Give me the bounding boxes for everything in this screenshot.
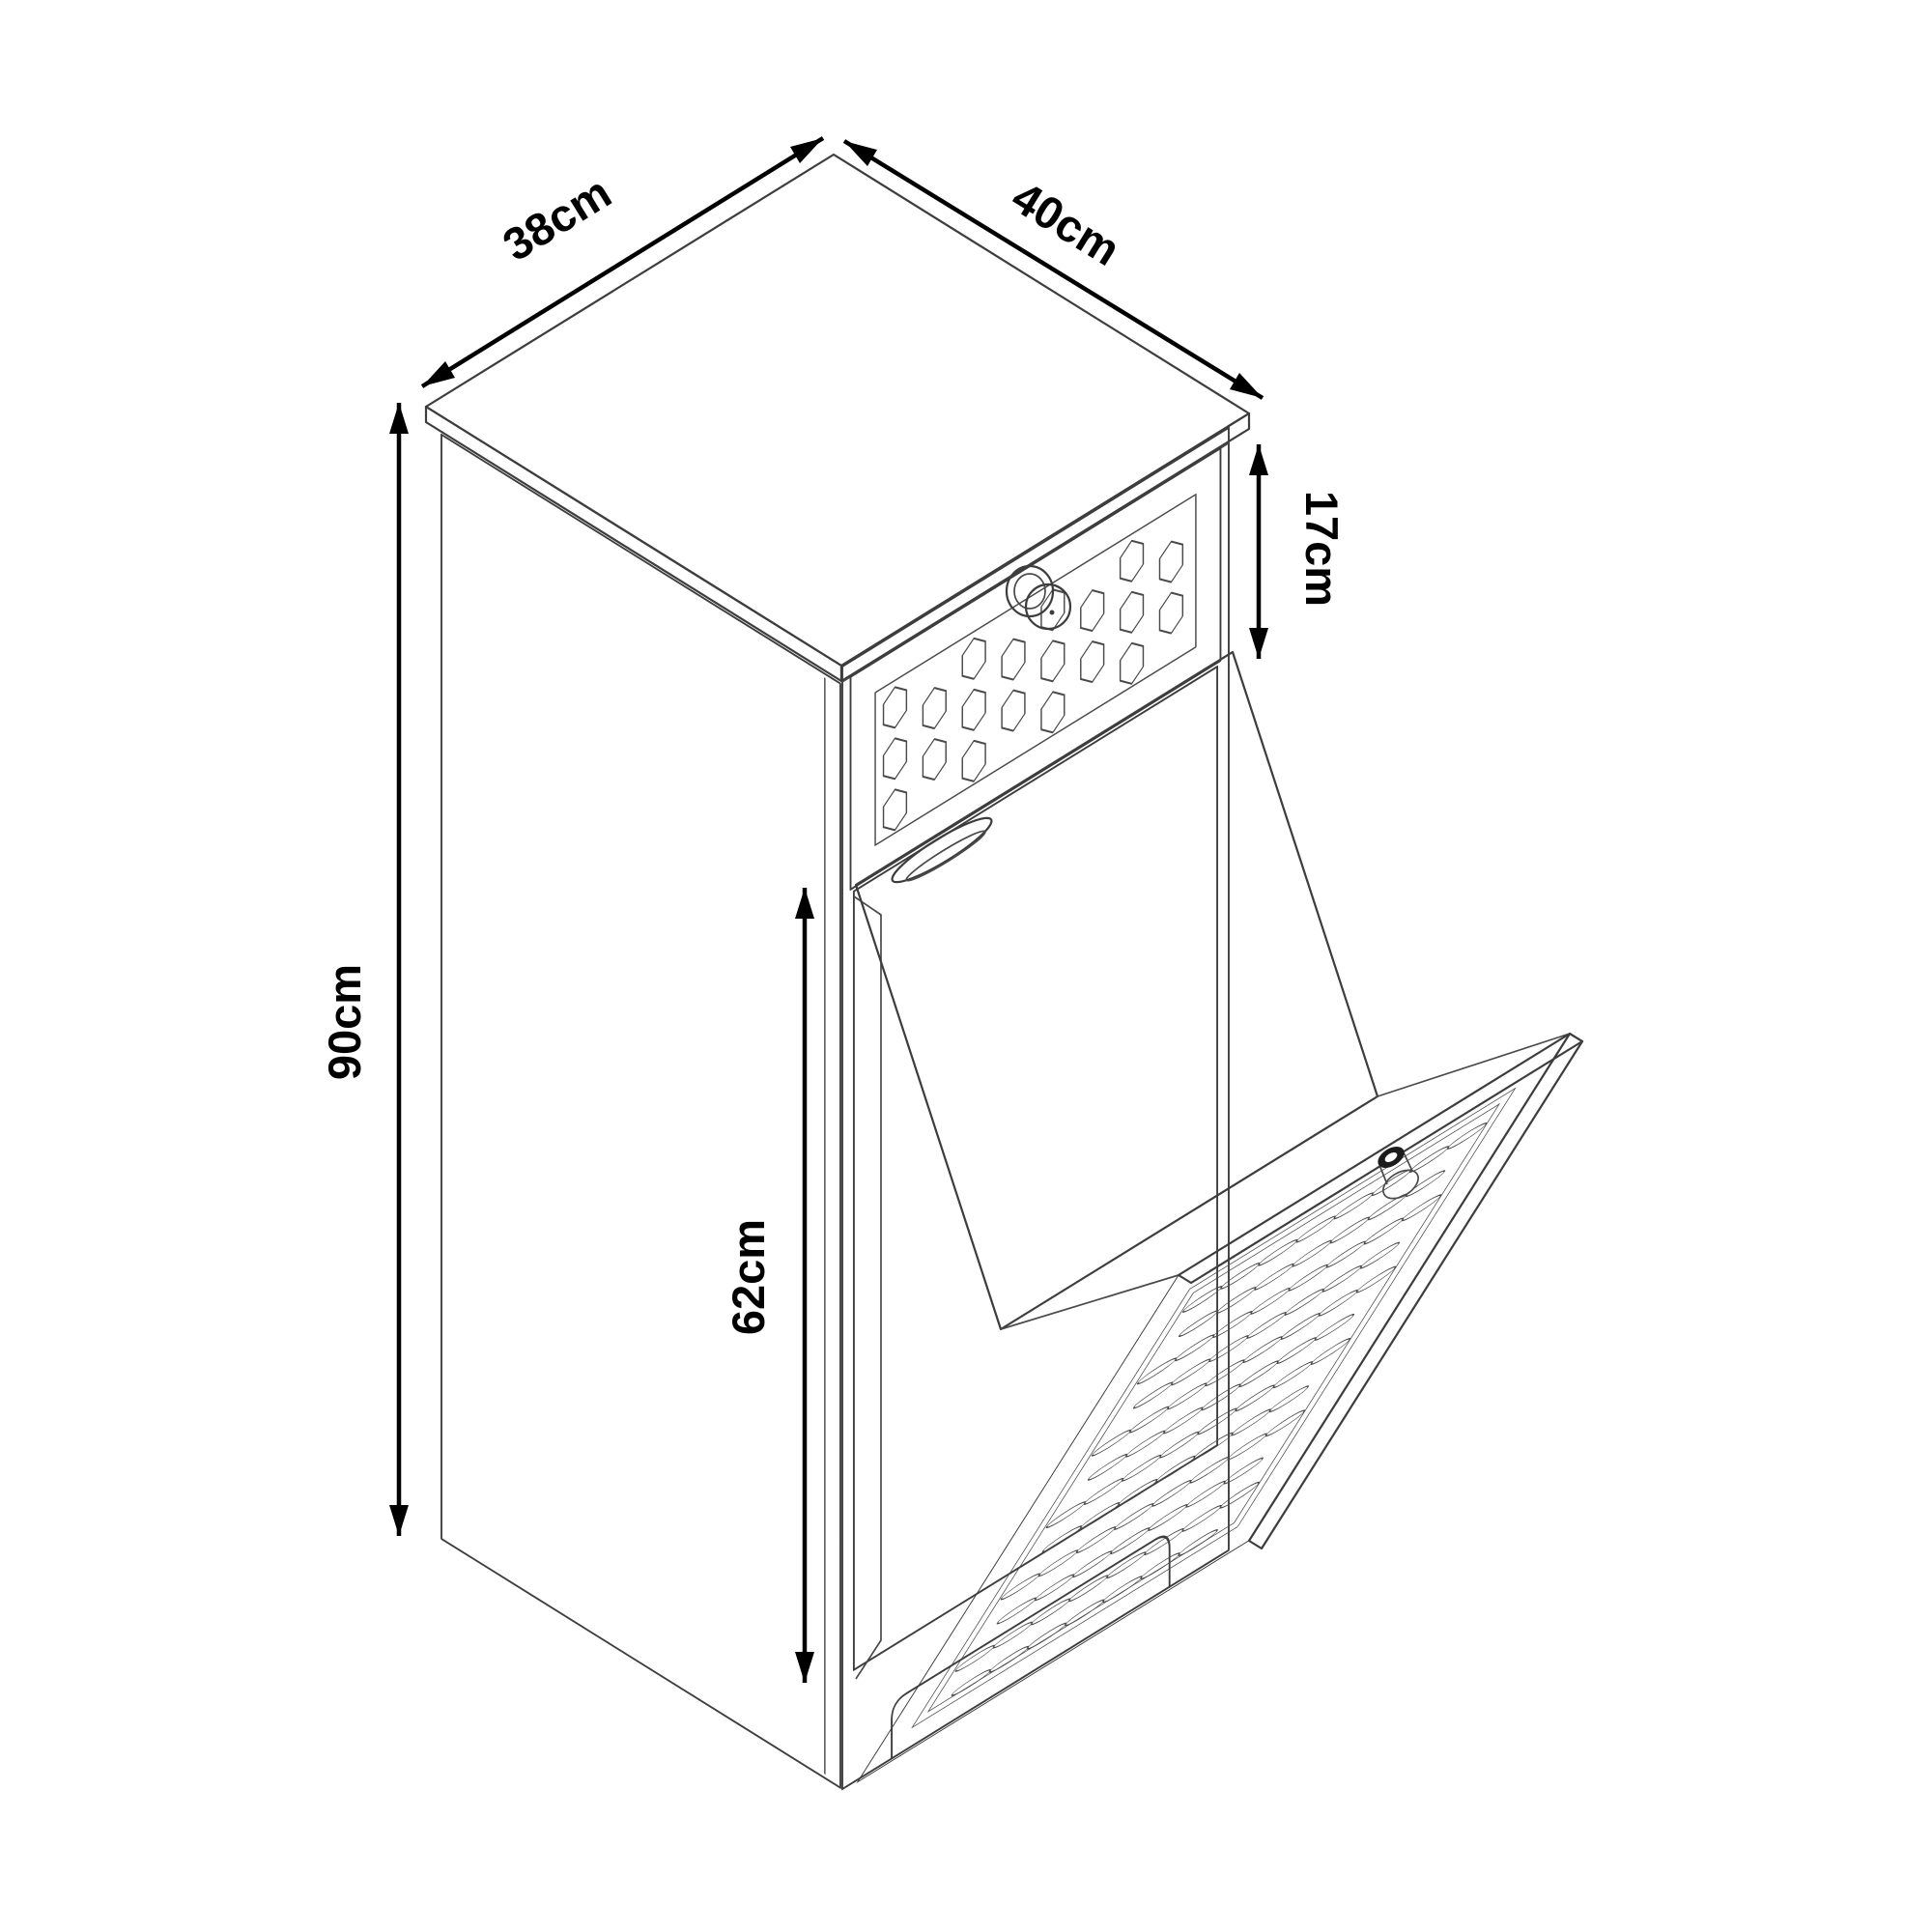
hexagon-cutout xyxy=(1081,635,1104,690)
top-edge-left xyxy=(426,407,841,681)
hexagon-cutout xyxy=(1121,636,1144,691)
handle-slot xyxy=(887,810,998,890)
drawer-frame xyxy=(851,448,1221,890)
hexagon-cutout xyxy=(923,681,946,736)
hexagon-cutout xyxy=(962,631,985,686)
dimension-label: 38cm xyxy=(494,166,619,270)
arrowhead xyxy=(389,403,409,434)
door-frame-inner xyxy=(912,1089,1515,1728)
dimension-label: 17cm xyxy=(1296,491,1348,607)
hexagon-cutout xyxy=(1002,632,1025,687)
arrowhead xyxy=(389,1505,409,1536)
dimension-17cm: 17cm xyxy=(1249,444,1348,659)
hexagon-cutout xyxy=(884,731,907,786)
basket-side-edge-right xyxy=(1378,1034,1570,1096)
cabinet xyxy=(426,155,1582,1789)
hexagon-cutout xyxy=(884,782,907,838)
dimension-label: 90cm xyxy=(319,964,370,1080)
door-knob-base xyxy=(1378,1164,1424,1204)
hexagon-cutout xyxy=(1121,533,1144,588)
dimension-annotations: 38cm 40cm 17cm 90cm 62cm xyxy=(319,138,1348,1683)
dimension-40cm: 40cm xyxy=(844,141,1263,398)
hexagon-cutout xyxy=(923,732,946,787)
door-outline xyxy=(858,1034,1570,1782)
hexagon-cutout xyxy=(884,680,907,735)
arrowhead xyxy=(844,141,877,166)
door-edge-right xyxy=(1249,1034,1582,1548)
dimension-line xyxy=(422,138,823,386)
hexagon-cutout xyxy=(1002,683,1025,738)
arrowhead xyxy=(795,888,814,919)
hexagon-cutout xyxy=(1159,534,1182,589)
hexagon-cutout xyxy=(1041,685,1065,740)
side-panel xyxy=(441,435,840,1788)
hexagon-cutout xyxy=(962,682,985,737)
dimension-label: 62cm xyxy=(723,1219,774,1335)
front-face xyxy=(842,428,1229,1789)
arrowhead xyxy=(790,138,823,163)
drawer-knob-dot xyxy=(1050,611,1055,615)
front-face-outline xyxy=(842,428,1229,1789)
dimension-90cm: 90cm xyxy=(319,403,409,1536)
hexagon-cutout xyxy=(1121,584,1144,639)
basket-side-edge-left xyxy=(1001,1275,1179,1329)
dimension-line xyxy=(844,141,1263,398)
arrowhead xyxy=(422,361,455,386)
door-knob xyxy=(1375,1142,1424,1204)
honeycomb-pattern xyxy=(884,509,1183,837)
opening-jamb-line xyxy=(854,896,881,1679)
dimension-62cm: 62cm xyxy=(723,888,814,1683)
hexagon-cutout xyxy=(1041,634,1065,689)
tilt-out-door xyxy=(858,1034,1582,1782)
basket-back-panel xyxy=(856,652,1570,1329)
hexagon-cutout xyxy=(1159,585,1182,640)
hexagon-cutout xyxy=(1081,583,1104,639)
hexagon-cutout xyxy=(962,733,985,788)
arrowhead xyxy=(795,1652,814,1683)
technical-drawing: 38cm 40cm 17cm 90cm 62cm xyxy=(0,0,1932,1932)
drawer-front xyxy=(851,448,1221,890)
door-panel-groove xyxy=(928,1104,1499,1712)
side-panel-face xyxy=(441,435,840,1788)
dimension-label: 40cm xyxy=(1004,171,1129,275)
drawing-canvas: 38cm 40cm 17cm 90cm 62cm xyxy=(0,0,1932,1932)
door-perforation-pattern xyxy=(930,1120,1490,1711)
arrowhead xyxy=(1249,628,1268,659)
arrowhead xyxy=(1230,373,1263,398)
hamper-opening xyxy=(854,667,1217,1669)
arrowhead xyxy=(1249,444,1268,475)
dimension-38cm: 38cm xyxy=(422,138,823,386)
